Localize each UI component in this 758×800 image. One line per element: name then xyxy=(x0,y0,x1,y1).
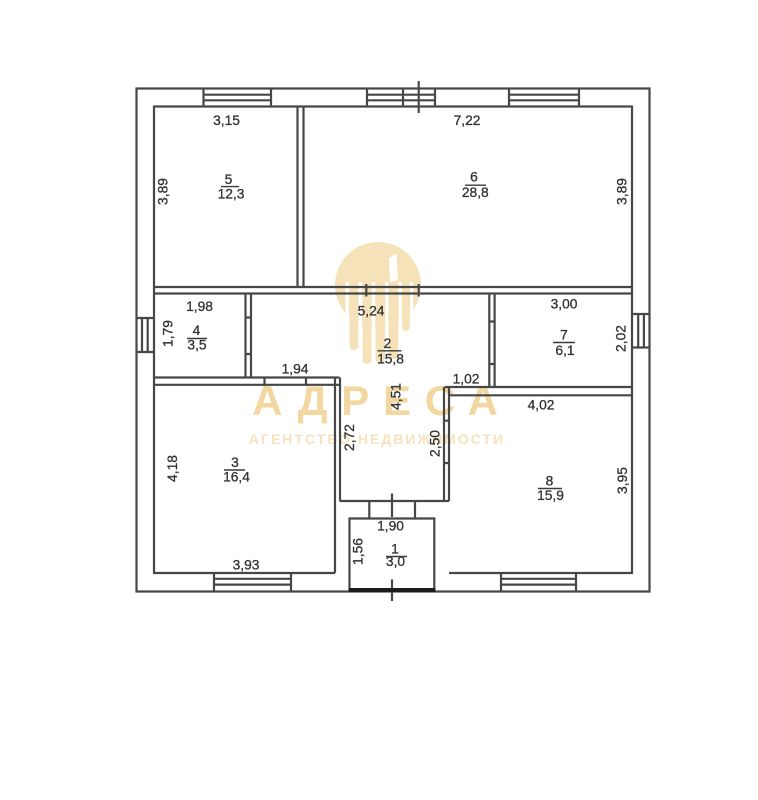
svg-text:АГЕНТСТВО НЕДВИЖИМОСТИ: АГЕНТСТВО НЕДВИЖИМОСТИ xyxy=(249,431,505,447)
svg-text:6,1: 6,1 xyxy=(555,343,574,358)
svg-text:3,5: 3,5 xyxy=(187,338,207,353)
svg-text:3: 3 xyxy=(231,455,239,470)
svg-text:3,95: 3,95 xyxy=(615,467,630,494)
svg-text:1,90: 1,90 xyxy=(377,519,404,534)
svg-text:2: 2 xyxy=(384,336,392,351)
svg-text:8: 8 xyxy=(546,474,554,489)
svg-text:6: 6 xyxy=(470,169,478,184)
svg-text:4,02: 4,02 xyxy=(528,398,555,413)
svg-text:4: 4 xyxy=(193,323,201,338)
svg-text:2,50: 2,50 xyxy=(428,430,443,457)
svg-text:1,79: 1,79 xyxy=(161,320,176,347)
svg-text:12,3: 12,3 xyxy=(218,187,245,202)
svg-text:3,93: 3,93 xyxy=(233,558,260,573)
svg-text:7: 7 xyxy=(560,328,568,343)
svg-text:28,8: 28,8 xyxy=(462,185,489,200)
svg-text:3,00: 3,00 xyxy=(551,297,578,312)
svg-text:1,56: 1,56 xyxy=(351,538,366,565)
svg-text:1,02: 1,02 xyxy=(453,372,480,387)
svg-text:3,15: 3,15 xyxy=(213,113,240,128)
svg-text:3,89: 3,89 xyxy=(615,178,630,205)
svg-text:4,18: 4,18 xyxy=(165,455,180,482)
svg-text:15,8: 15,8 xyxy=(377,352,404,367)
svg-text:7,22: 7,22 xyxy=(454,113,481,128)
svg-text:4,51: 4,51 xyxy=(389,383,404,410)
svg-text:5: 5 xyxy=(225,172,233,187)
svg-text:3,89: 3,89 xyxy=(156,178,171,205)
svg-text:5,24: 5,24 xyxy=(358,304,385,319)
svg-text:1,94: 1,94 xyxy=(282,362,309,377)
svg-text:2,02: 2,02 xyxy=(614,325,629,352)
svg-text:1,98: 1,98 xyxy=(186,299,213,314)
svg-text:15,9: 15,9 xyxy=(537,488,564,503)
svg-text:2,72: 2,72 xyxy=(342,424,357,451)
svg-text:16,4: 16,4 xyxy=(223,470,250,485)
